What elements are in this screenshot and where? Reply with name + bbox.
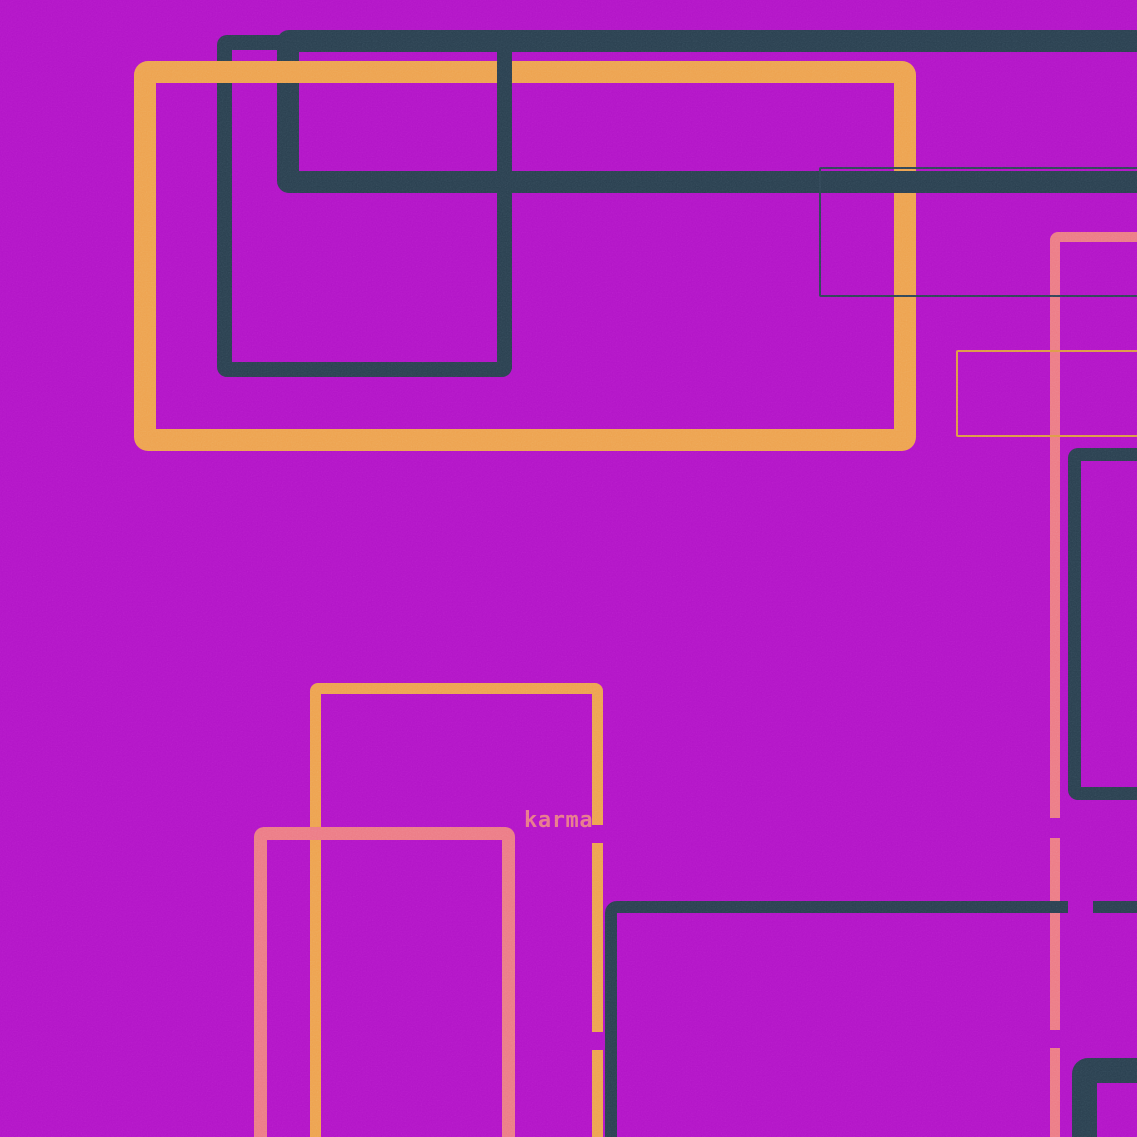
orange-rect-large [134,61,916,451]
navy-rect-right [1068,448,1137,800]
karma-label: karma [524,810,593,832]
navy-rect-bottom [605,901,1137,1137]
orange-thin-rect [956,350,1137,437]
bg-patch-pink-gap-bottom [1046,1030,1064,1048]
pink-rect-bottom-left [254,827,515,1137]
bg-patch-orange-gap-bottom [590,1032,604,1050]
bg-patch-navy-bar-gap [1068,897,1093,915]
navy-thin-rect [819,167,1137,297]
navy-rect-top-left-right-edge [497,43,512,369]
abstract-art-canvas: karma [0,0,1137,1137]
navy-rect-bottom-right [1072,1058,1137,1137]
bg-patch-pink-gap-top [1046,818,1064,838]
